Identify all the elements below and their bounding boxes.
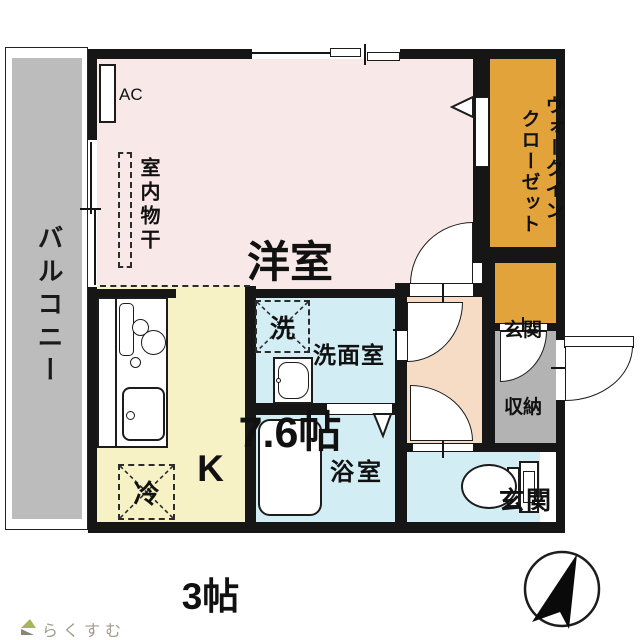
doorway-front <box>556 340 565 400</box>
doorway-washroom <box>397 330 407 360</box>
logo-text: らくすむ <box>42 617 126 640</box>
wall <box>88 49 97 533</box>
compass <box>525 552 599 629</box>
entrance-storage-line1: 玄関 <box>490 318 556 344</box>
walk-in-closet-label: ウォークイン クローゼット <box>493 66 588 246</box>
window-top-pane <box>367 52 400 61</box>
stove-burner-icon <box>141 330 166 355</box>
kitchen-name: K <box>163 448 258 491</box>
kitchen-size: 3帖 <box>163 576 258 619</box>
wall <box>473 247 556 263</box>
floor-plan: バルコニー <box>0 0 640 640</box>
bathroom-label: 浴室 <box>330 452 384 487</box>
wall <box>395 289 407 523</box>
window-balcony-pane <box>90 142 92 214</box>
door-arc-front <box>565 346 633 401</box>
stove-knob-icon <box>130 357 141 368</box>
entrance-storage-label: 玄関 収納 <box>490 267 556 472</box>
fridge-label: 冷 <box>118 464 175 520</box>
entrance-label: 玄関 <box>495 481 557 517</box>
compass-needle <box>532 554 577 629</box>
indoor-drying-label: 室内物干 <box>134 157 163 253</box>
wic-door-leaf <box>475 97 489 167</box>
washroom-label: 洗面室 <box>313 336 385 370</box>
kitchen-counter-back <box>97 297 117 448</box>
indoor-drying-box <box>118 152 132 268</box>
window-top-tick <box>364 44 366 65</box>
window-top-pane <box>330 48 361 57</box>
window-balcony-tick <box>80 208 101 210</box>
window-balcony-pane <box>94 210 96 285</box>
logo-icon <box>21 619 36 635</box>
balcony-label: バルコニー <box>31 224 68 389</box>
living-room-name: 洋室 <box>185 235 395 292</box>
wic-label-col1: ウォークイン <box>542 95 563 221</box>
entrance-storage-line2: 収納 <box>490 395 556 421</box>
washer-label: 洗 <box>255 300 310 353</box>
faucet-icon <box>126 411 135 420</box>
ac-unit <box>99 64 116 123</box>
wic-label-col2: クローゼット <box>519 109 540 235</box>
kitchen-label: K 3帖 <box>163 363 258 640</box>
ac-label: AC <box>119 85 143 105</box>
